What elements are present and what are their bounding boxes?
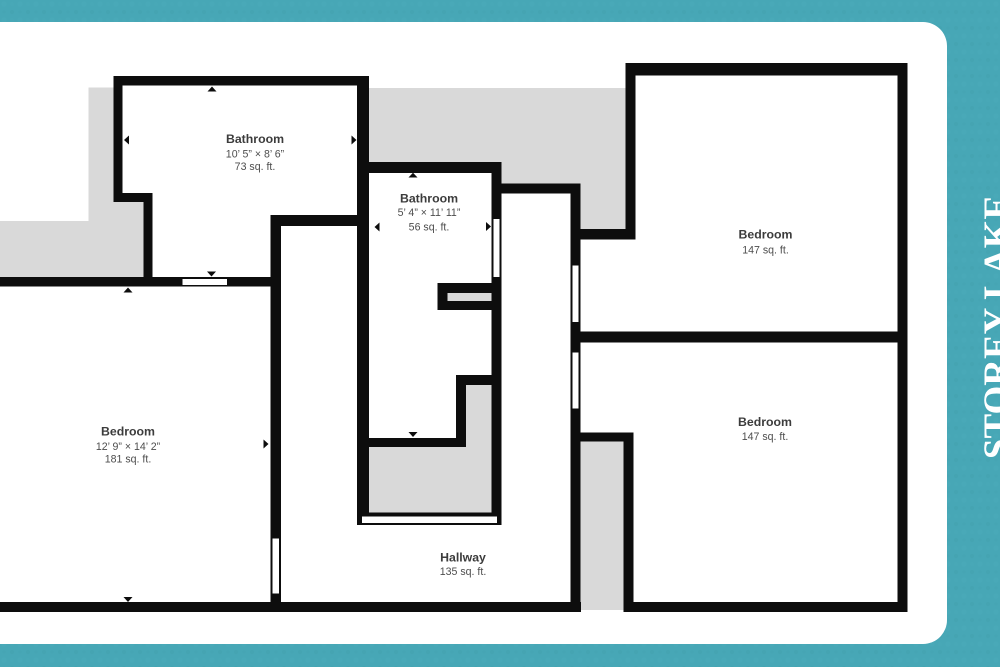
- svg-text:147 sq. ft.: 147 sq. ft.: [742, 245, 789, 257]
- svg-text:Bathroom: Bathroom: [400, 191, 458, 205]
- svg-text:10’ 5” × 8’ 6”: 10’ 5” × 8’ 6”: [226, 149, 285, 161]
- svg-text:135 sq. ft.: 135 sq. ft.: [440, 566, 487, 578]
- svg-text:STOREY LAKE: STOREY LAKE: [977, 195, 1000, 459]
- svg-text:73 sq. ft.: 73 sq. ft.: [235, 161, 276, 173]
- svg-text:Bedroom: Bedroom: [101, 425, 155, 439]
- svg-text:12’ 9” × 14’ 2”: 12’ 9” × 14’ 2”: [96, 441, 161, 453]
- svg-text:147 sq. ft.: 147 sq. ft.: [742, 431, 789, 443]
- svg-text:Bedroom: Bedroom: [738, 415, 792, 429]
- svg-text:5’ 4” × 11’ 11”: 5’ 4” × 11’ 11”: [398, 207, 461, 219]
- svg-text:Hallway: Hallway: [440, 550, 486, 564]
- svg-text:Bedroom: Bedroom: [739, 228, 793, 242]
- svg-text:181 sq. ft.: 181 sq. ft.: [105, 454, 152, 466]
- svg-text:Bathroom: Bathroom: [226, 132, 284, 146]
- svg-text:56 sq. ft.: 56 sq. ft.: [409, 221, 450, 233]
